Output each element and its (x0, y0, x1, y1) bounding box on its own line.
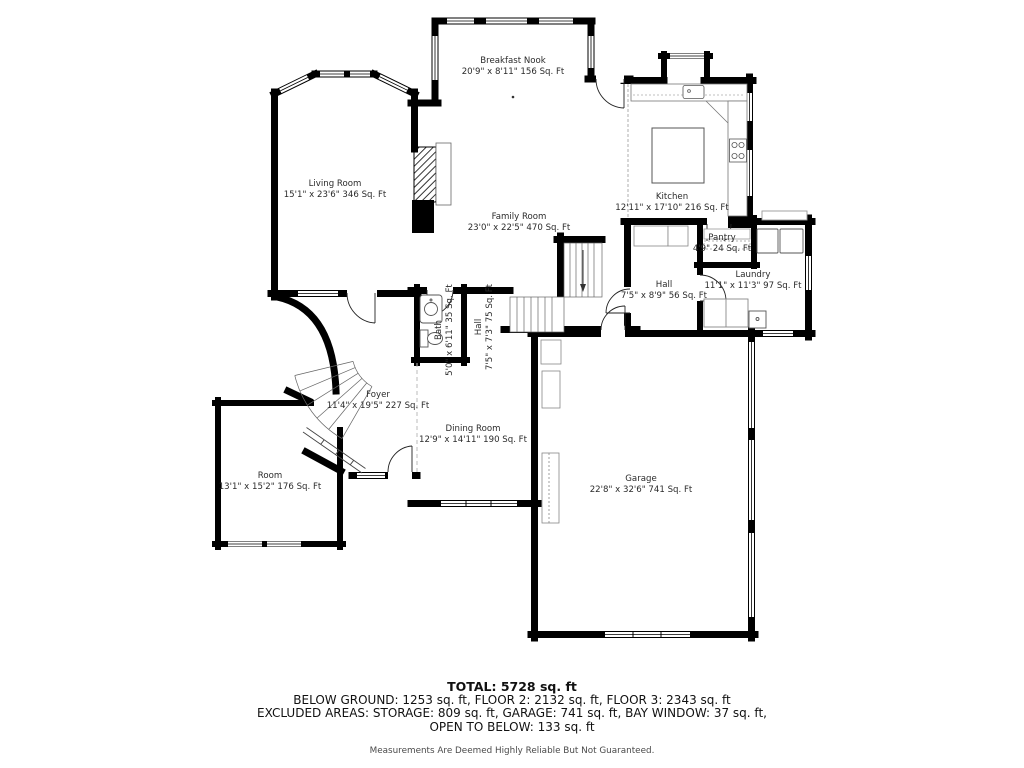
room-dims-breakfast-nook: 20'9" x 8'11" 156 Sq. Ft (462, 67, 565, 77)
room-label-kitchen: Kitchen (656, 192, 688, 202)
floor-plan: Breakfast Nook 20'9" x 8'11" 156 Sq. Ft … (0, 0, 1024, 676)
area-summary: TOTAL: 5728 sq. ft BELOW GROUND: 1253 sq… (0, 680, 1024, 756)
room-dims-hall-main: 7'5" x 8'9" 56 Sq. Ft (621, 291, 708, 301)
room-label-laundry: Laundry (735, 270, 770, 280)
floor-areas: BELOW GROUND: 1253 sq. ft, FLOOR 2: 2132… (0, 694, 1024, 707)
disclaimer: Measurements Are Deemed Highly Reliable … (0, 746, 1024, 756)
room-dims-foyer: 11'4" x 19'5" 227 Sq. Ft (327, 401, 430, 411)
room-dims-kitchen: 12'11" x 17'10" 216 Sq. Ft (615, 203, 729, 213)
garage-storage (541, 340, 561, 523)
room-label-room: Room (258, 471, 282, 481)
stove (730, 139, 747, 162)
room-label-breakfast-nook: Breakfast Nook (480, 56, 546, 66)
room-dims-laundry: 11'1" x 11'3" 97 Sq. Ft (704, 281, 802, 291)
door-living-foyer (347, 293, 375, 323)
cabinet (762, 211, 807, 220)
total-area: TOTAL: 5728 sq. ft (0, 680, 1024, 694)
floor-plan-page: Breakfast Nook 20'9" x 8'11" 156 Sq. Ft … (0, 0, 1024, 768)
room-label-foyer: Foyer (366, 390, 390, 400)
room-dims-garage: 22'8" x 32'6" 741 Sq. Ft (590, 485, 693, 495)
room-label-garage: Garage (625, 474, 656, 484)
hall-counter (668, 226, 688, 246)
toilet-tank (420, 330, 428, 347)
room-dims-room: 13'1" x 15'2" 176 Sq. Ft (219, 482, 322, 492)
room-label-hall-main: Hall (656, 280, 673, 290)
kitchen-island (652, 128, 704, 183)
dryer (780, 229, 803, 253)
room-dims-pantry: 4'9" 24 Sq. Ft (693, 244, 752, 254)
room-label-hall-small: Hall (474, 319, 484, 336)
washer (757, 229, 778, 253)
fireplace (414, 143, 451, 205)
room-label-bath: Bath (434, 320, 444, 340)
room-dims-hall-small: 7'5" x 7'3" 75 Sq. Ft (485, 283, 495, 370)
excluded-areas: EXCLUDED AREAS: STORAGE: 809 sq. ft, GAR… (0, 707, 1024, 720)
room-dims-dining-room: 12'9" x 14'11" 190 Sq. Ft (419, 435, 528, 445)
room-dims-family-room: 23'0" x 22'5" 470 Sq. Ft (468, 223, 571, 233)
hall-counter (634, 226, 668, 246)
open-to-below: OPEN TO BELOW: 133 sq. ft (0, 721, 1024, 734)
room-label-dining-room: Dining Room (446, 424, 501, 434)
door-front (388, 446, 412, 472)
room-label-family-room: Family Room (492, 212, 547, 222)
room-dims-living-room: 15'1" x 23'6" 346 Sq. Ft (284, 190, 387, 200)
main-stairs (510, 243, 602, 332)
kitchen-sink (683, 86, 704, 99)
room-label-living-room: Living Room (309, 179, 362, 189)
wall-chunk (412, 200, 434, 233)
wall-chunk (728, 215, 757, 228)
room-dims-bath: 5'0" x 6'11" 35 Sq. Ft (445, 284, 455, 376)
nook-dot (512, 96, 515, 99)
room-label-pantry: Pantry (708, 233, 736, 243)
door-breakfast-kitchen (596, 79, 624, 108)
